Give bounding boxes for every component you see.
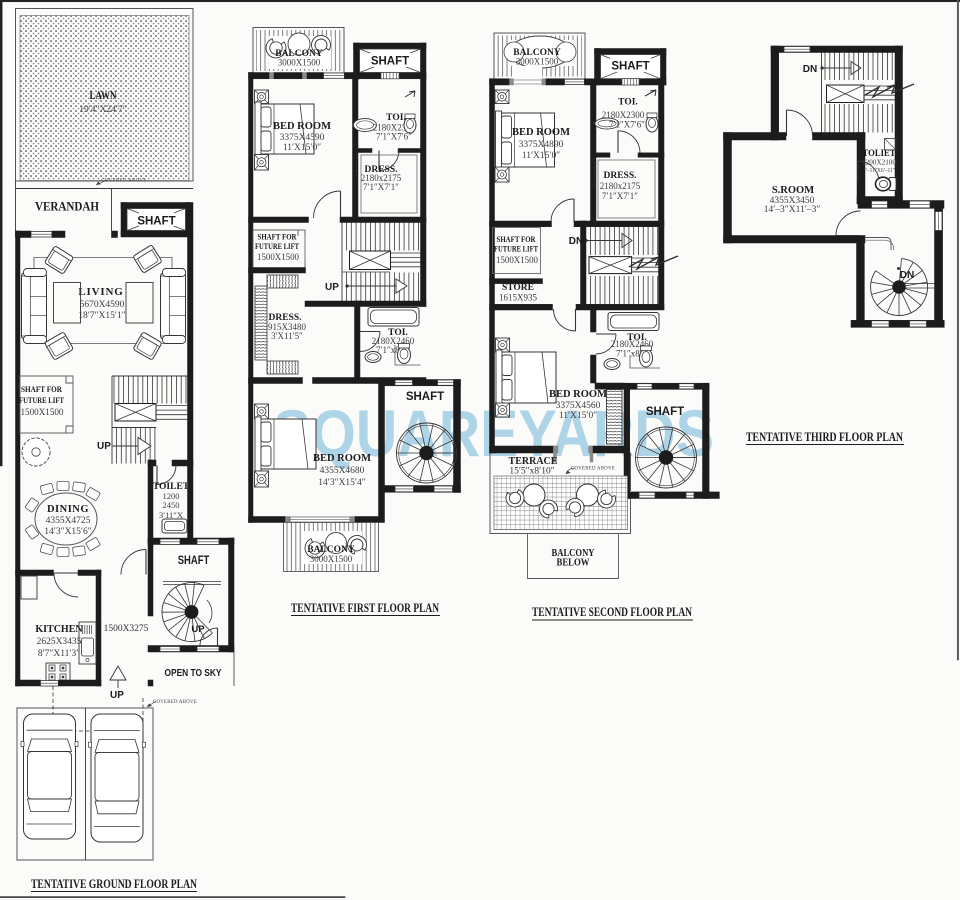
svg-text:FUTURE LIFT: FUTURE LIFT	[494, 244, 538, 254]
svg-text:1500X1500: 1500X1500	[496, 255, 538, 265]
svg-text:UP: UP	[97, 441, 111, 452]
svg-text:3000X1500: 3000X1500	[516, 57, 559, 67]
svg-text:1500X3275: 1500X3275	[104, 624, 149, 634]
svg-text:STORE: STORE	[502, 283, 534, 293]
svg-text:SHAFT FOR: SHAFT FOR	[21, 384, 63, 394]
svg-text:14′3″X15′4″: 14′3″X15′4″	[318, 478, 365, 488]
svg-text:TOI.: TOI.	[386, 113, 406, 123]
svg-text:5670X4590: 5670X4590	[80, 300, 125, 310]
svg-text:UP: UP	[191, 624, 205, 635]
svg-text:TOI.: TOI.	[618, 98, 638, 108]
svg-text:7′1″X7′6″: 7′1″X7′6″	[609, 120, 645, 130]
svg-text:7′1″X7′1″: 7′1″X7′1″	[602, 191, 638, 201]
svg-text:DN: DN	[803, 64, 817, 75]
svg-text:SHAFT: SHAFT	[406, 391, 444, 403]
svg-text:8′7″X11′3″: 8′7″X11′3″	[38, 649, 80, 659]
svg-text:TENTATIVE SECOND FLOOR PLAN: TENTATIVE SECOND FLOOR PLAN	[532, 605, 692, 619]
svg-text:DRESS.: DRESS.	[604, 171, 637, 181]
svg-text:7′1″X7′1″: 7′1″X7′1″	[363, 182, 399, 192]
svg-text:2180x2175: 2180x2175	[600, 181, 641, 191]
svg-text:14′–3″X11′–3″: 14′–3″X11′–3″	[764, 205, 821, 215]
svg-text:LIVING: LIVING	[78, 286, 123, 298]
svg-text:4355X4680: 4355X4680	[320, 466, 365, 476]
svg-text:1500X1500: 1500X1500	[257, 252, 299, 262]
svg-text:7′1″X7′6″: 7′1″X7′6″	[376, 132, 412, 142]
svg-text:3375X4590: 3375X4590	[280, 133, 325, 143]
svg-text:BED ROOM: BED ROOM	[273, 121, 331, 132]
svg-text:SHAFT: SHAFT	[137, 216, 175, 228]
svg-text:SHAFT: SHAFT	[646, 406, 684, 418]
svg-text:1500X1500: 1500X1500	[21, 408, 64, 418]
svg-text:DINING: DINING	[47, 504, 89, 515]
svg-text:SHAFT: SHAFT	[371, 56, 409, 68]
svg-text:BELOW: BELOW	[557, 558, 590, 569]
svg-text:VERANDAH: VERANDAH	[35, 199, 99, 214]
svg-text:3000X1500: 3000X1500	[278, 58, 321, 68]
svg-text:BED ROOM: BED ROOM	[512, 127, 570, 138]
svg-text:TENTATIVE GROUND FLOOR PLAN: TENTATIVE GROUND FLOOR PLAN	[31, 877, 197, 891]
svg-text:OPEN TO SKY: OPEN TO SKY	[165, 667, 222, 679]
svg-text:COVERED ABOVE: COVERED ABOVE	[571, 467, 615, 472]
svg-text:S.ROOM: S.ROOM	[772, 185, 814, 196]
svg-text:19′4″X24′7″: 19′4″X24′7″	[79, 105, 126, 115]
svg-text:TENTATIVE FIRST FLOOR PLAN: TENTATIVE FIRST FLOOR PLAN	[291, 601, 439, 615]
svg-text:3′–11″X6′–11″: 3′–11″X6′–11″	[863, 167, 895, 174]
svg-text:DN: DN	[900, 270, 914, 281]
svg-text:SHAFT FOR: SHAFT FOR	[497, 234, 537, 244]
svg-text:11′X15′0″: 11′X15′0″	[283, 143, 321, 153]
svg-text:TENTATIVE THIRD FLOOR PLAN: TENTATIVE THIRD FLOOR PLAN	[746, 430, 903, 444]
svg-text:COVERED ABOVE: COVERED ABOVE	[153, 700, 197, 705]
svg-text:UP: UP	[110, 690, 124, 701]
svg-text:2450: 2450	[163, 500, 180, 510]
svg-text:3′X11′5″: 3′X11′5″	[271, 331, 303, 341]
svg-text:LAWN: LAWN	[90, 90, 118, 102]
svg-text:COVERED ABOVE: COVERED ABOVE	[101, 179, 146, 184]
svg-text:11′X15′0″: 11′X15′0″	[522, 151, 560, 161]
svg-text:SHAFT FOR: SHAFT FOR	[258, 232, 298, 242]
svg-text:SHAFT: SHAFT	[178, 553, 210, 567]
svg-text:1200X2100: 1200X2100	[862, 158, 896, 167]
svg-text:1615X935: 1615X935	[499, 293, 537, 303]
svg-text:BED ROOM: BED ROOM	[549, 389, 607, 400]
svg-text:14′3″X15′6″: 14′3″X15′6″	[44, 527, 91, 537]
svg-text:UP: UP	[325, 282, 339, 293]
svg-text:15′5″x8′10″: 15′5″x8′10″	[509, 467, 554, 477]
svg-text:3375X4560: 3375X4560	[556, 401, 601, 411]
svg-text:TERRACE: TERRACE	[509, 456, 558, 467]
svg-text:11′X15′0″: 11′X15′0″	[559, 411, 597, 421]
svg-text:BED ROOM: BED ROOM	[313, 453, 371, 464]
svg-text:KITCHEN: KITCHEN	[35, 624, 83, 635]
svg-text:3000X1500: 3000X1500	[310, 554, 353, 564]
svg-text:2625X3435: 2625X3435	[37, 637, 82, 647]
svg-text:18′7″X15′1″: 18′7″X15′1″	[78, 311, 125, 321]
svg-text:FUTURE LIFT: FUTURE LIFT	[255, 241, 299, 251]
svg-text:3375X4890: 3375X4890	[519, 140, 564, 150]
svg-text:4355X4725: 4355X4725	[46, 516, 91, 526]
svg-text:SHAFT: SHAFT	[611, 61, 649, 73]
svg-text:FUTURE LIFT: FUTURE LIFT	[19, 395, 64, 405]
